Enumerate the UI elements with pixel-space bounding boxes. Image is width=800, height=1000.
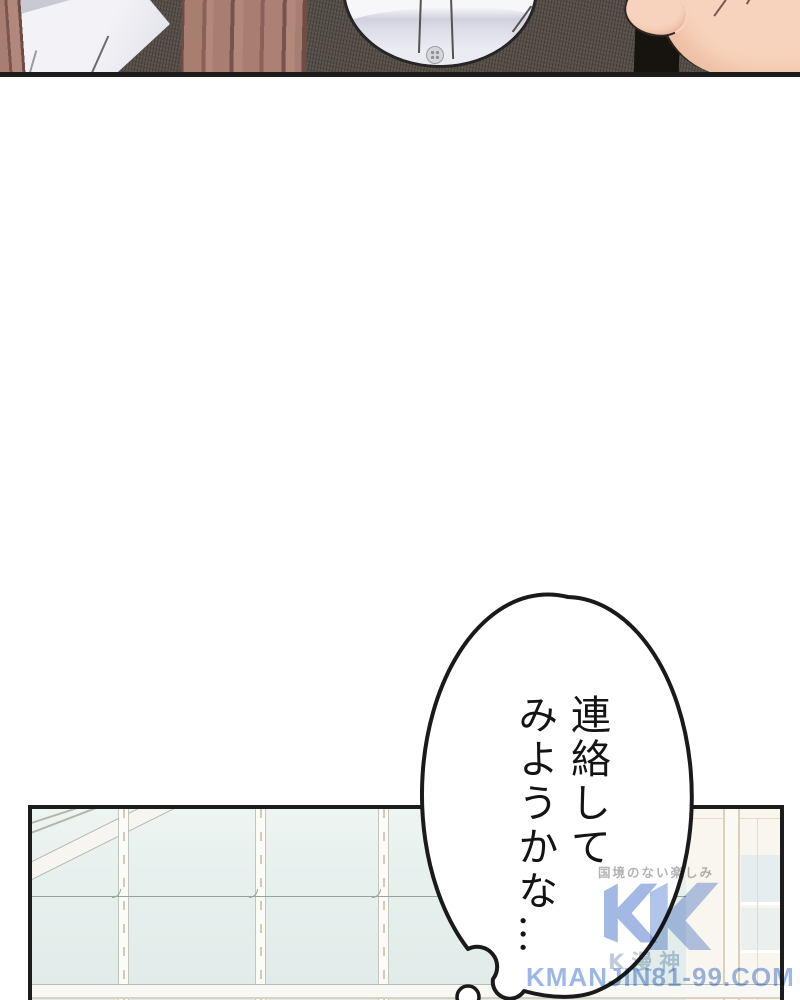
window-mullion bbox=[255, 809, 266, 1000]
frame-post bbox=[723, 809, 740, 1000]
hair-strands bbox=[180, 0, 308, 77]
knuckle-crease bbox=[713, 0, 726, 17]
mullion-detail bbox=[123, 809, 125, 1000]
knuckle-crease bbox=[746, 0, 754, 5]
hair-strand-left bbox=[0, 0, 33, 77]
window-mullion bbox=[118, 809, 129, 1000]
window-mullion bbox=[378, 809, 389, 1000]
manga-page: 連絡して みようかな… 国境のない楽しみ K漫神 KMANJIN81-99.CO… bbox=[0, 0, 800, 1000]
mullion-detail bbox=[260, 809, 262, 1000]
shirt-button bbox=[426, 46, 444, 64]
mullion-detail bbox=[383, 809, 385, 1000]
glass-pane bbox=[741, 908, 780, 953]
frame-line bbox=[757, 818, 758, 1000]
top-manga-panel bbox=[0, 0, 800, 77]
shirt-collar-opening bbox=[342, 0, 538, 68]
bubble-text: 連絡して みようかな… bbox=[497, 694, 613, 974]
thought-bubble-tail-circle bbox=[457, 986, 479, 1000]
glass-pane bbox=[741, 855, 780, 905]
